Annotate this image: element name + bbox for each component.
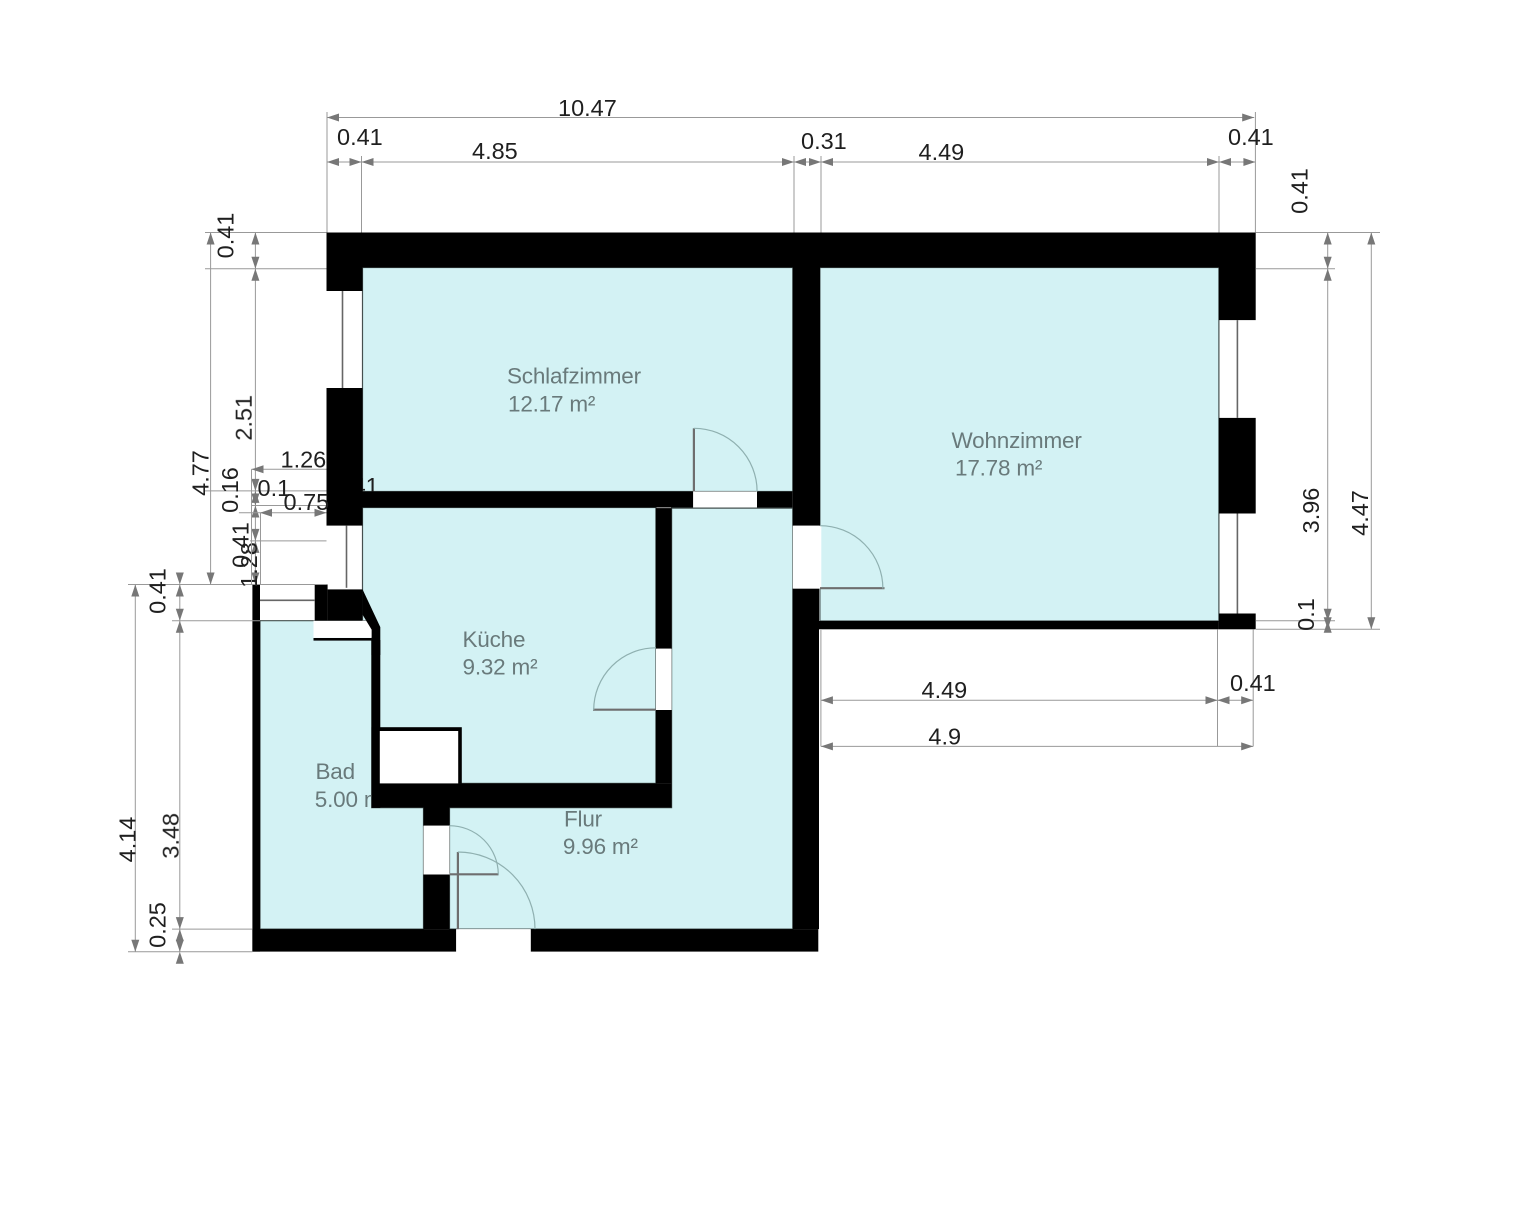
svg-text:4.14: 4.14 [115, 817, 141, 863]
svg-text:Bad: Bad [316, 759, 355, 784]
svg-text:0.41: 0.41 [145, 568, 171, 614]
svg-text:0.41: 0.41 [1287, 168, 1313, 214]
svg-text:Schlafzimmer: Schlafzimmer [507, 364, 642, 389]
svg-text:3.48: 3.48 [158, 813, 184, 859]
svg-text:0.41: 0.41 [337, 124, 383, 150]
svg-text:3.96: 3.96 [1298, 488, 1324, 534]
svg-text:4.49: 4.49 [919, 139, 965, 165]
svg-text:Wohnzimmer: Wohnzimmer [952, 428, 1083, 453]
svg-text:4.85: 4.85 [472, 138, 518, 164]
svg-text:0.41: 0.41 [1228, 124, 1274, 150]
svg-text:Flur: Flur [564, 807, 603, 832]
svg-text:9.96 m²: 9.96 m² [563, 834, 639, 859]
svg-text:0.25: 0.25 [145, 902, 171, 948]
svg-text:1.26: 1.26 [281, 447, 327, 473]
svg-text:10.47: 10.47 [558, 95, 617, 121]
svg-text:4.77: 4.77 [188, 450, 214, 496]
svg-text:2.51: 2.51 [231, 395, 257, 441]
svg-text:9.32 m²: 9.32 m² [463, 654, 539, 679]
svg-text:0.1: 0.1 [1293, 598, 1319, 631]
svg-text:Küche: Küche [463, 627, 526, 652]
svg-text:4.47: 4.47 [1347, 490, 1373, 536]
svg-text:4.49: 4.49 [922, 677, 968, 703]
svg-text:1.28: 1.28 [236, 542, 262, 588]
svg-text:0.41: 0.41 [213, 213, 239, 259]
svg-text:0.75: 0.75 [284, 489, 330, 515]
svg-text:17.78 m²: 17.78 m² [955, 455, 1043, 480]
svg-text:0.41: 0.41 [1230, 670, 1276, 696]
svg-text:0.16: 0.16 [217, 467, 243, 513]
svg-text:12.17 m²: 12.17 m² [508, 392, 596, 417]
svg-text:0.31: 0.31 [801, 128, 847, 154]
svg-text:4.9: 4.9 [928, 724, 961, 750]
